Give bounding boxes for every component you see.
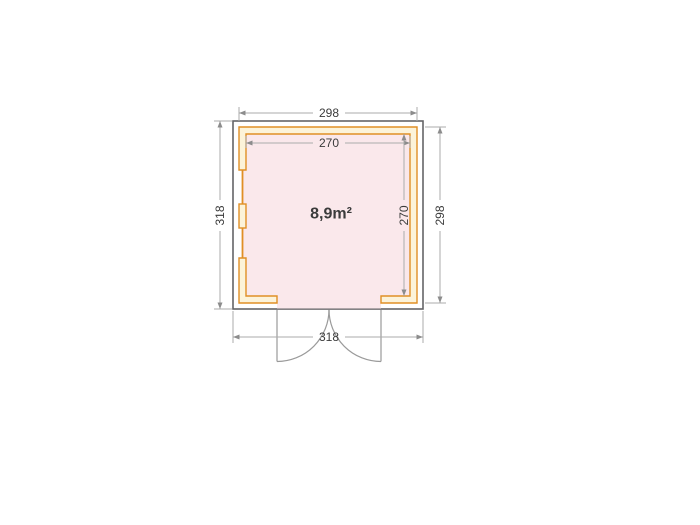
diagram-canvas: 298 270 318 270 298 [0,0,700,525]
interior-door-opening [277,296,381,309]
dim-arrow-down [218,303,223,310]
dim-arrow-down [438,297,443,304]
dim-arrow-left [239,111,246,116]
dim-top-inner-label: 270 [319,136,339,150]
area-label: 8,9m² [310,206,352,223]
floor-plan-svg: 298 270 318 270 298 [0,0,700,525]
dim-right-wall-label: 298 [433,205,447,225]
dim-arrow-left [233,335,240,340]
dim-arrow-right [411,111,418,116]
dim-right-inner-label: 270 [397,205,411,225]
dim-left-label: 318 [213,205,227,225]
dim-arrow-up [438,127,443,134]
wall-left-post [239,204,246,228]
dim-arrow-up [218,121,223,128]
dim-top-outer-label: 298 [319,106,339,120]
dim-arrow-right [417,335,424,340]
dim-bottom-label: 318 [319,330,339,344]
